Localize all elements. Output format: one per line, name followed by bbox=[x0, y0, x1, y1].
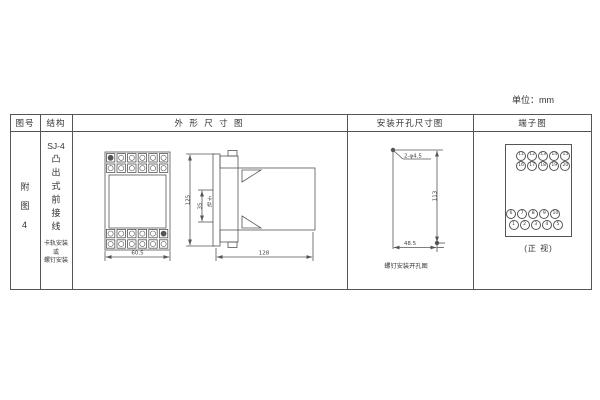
screw-head bbox=[129, 231, 134, 236]
screw-head bbox=[129, 155, 134, 160]
screw-head bbox=[108, 155, 113, 160]
mounting-caption: 螺钉安装开孔图 bbox=[384, 262, 427, 270]
screw-cell bbox=[138, 164, 146, 172]
screw-head bbox=[161, 155, 166, 160]
screw-cell bbox=[117, 229, 125, 237]
terminal-1: 1 bbox=[509, 220, 519, 230]
header-figure-no: 图号 bbox=[10, 114, 40, 131]
dim-rail-width: 35 bbox=[198, 202, 204, 209]
screw-cell bbox=[149, 240, 157, 248]
dim-depth: 128 bbox=[259, 251, 270, 257]
terminal-20: 20 bbox=[560, 161, 570, 171]
screw-cell bbox=[128, 164, 136, 172]
screw-cell bbox=[159, 164, 167, 172]
terminal-group-top: 11121314151617181920 bbox=[516, 151, 571, 173]
screw-cell bbox=[159, 154, 167, 162]
screw-head bbox=[119, 166, 124, 171]
screw-cell bbox=[149, 164, 157, 172]
header-mounting-holes: 安装开孔尺寸图 bbox=[347, 114, 473, 131]
mounting-hole-drawing: 2-φ4.5 113 48.5 螺钉安装开孔图 bbox=[347, 131, 473, 290]
terminal-11: 11 bbox=[516, 151, 526, 161]
screw-cell bbox=[117, 164, 125, 172]
screw-head bbox=[140, 241, 145, 246]
terminal-18: 18 bbox=[538, 161, 548, 171]
terminal-4: 4 bbox=[542, 220, 552, 230]
screw-head bbox=[150, 231, 155, 236]
terminal-5: 5 bbox=[553, 220, 563, 230]
terminal-row: 678910 bbox=[506, 209, 564, 220]
screw-cell bbox=[106, 164, 114, 172]
terminal-caption: (正 视) bbox=[505, 243, 572, 254]
outline-drawing: 60.5 125 35 128 bbox=[72, 131, 347, 290]
screw-head bbox=[140, 155, 145, 160]
screw-cell bbox=[138, 240, 146, 248]
screw-cell bbox=[149, 229, 157, 237]
screw-head bbox=[108, 166, 113, 171]
header-outline-dimensions: 外 形 尺 寸 图 bbox=[72, 114, 347, 131]
terminal-row: 1617181920 bbox=[516, 161, 571, 172]
header-terminal-diagram: 端子图 bbox=[473, 114, 592, 131]
screw-mark-bottom bbox=[242, 216, 261, 228]
terminal-group-bottom: 67891012345 bbox=[506, 209, 564, 231]
terminal-screws bbox=[106, 154, 167, 249]
model-label: SJ-4 bbox=[47, 141, 64, 151]
screw-head bbox=[161, 166, 166, 171]
front-view: 60.5 bbox=[105, 152, 170, 261]
dim-height: 125 bbox=[186, 194, 192, 205]
screw-head bbox=[161, 231, 166, 236]
screw-cell bbox=[128, 240, 136, 248]
screw-head bbox=[150, 166, 155, 171]
screw-cell bbox=[106, 229, 114, 237]
screw-head bbox=[161, 241, 166, 246]
screw-head bbox=[108, 231, 113, 236]
structure-cell: SJ-4 凸出式前接线 卡轨安装 或 螺钉安装 bbox=[40, 131, 72, 290]
screw-head bbox=[150, 155, 155, 160]
screw-cell bbox=[138, 229, 146, 237]
screw-cell bbox=[128, 154, 136, 162]
dim-front-width: 60.5 bbox=[131, 251, 144, 257]
terminal-9: 9 bbox=[539, 209, 549, 219]
screw-head bbox=[108, 241, 113, 246]
structure-type: 凸出式前接线 bbox=[50, 154, 63, 235]
screw-cell bbox=[106, 240, 114, 248]
mount-note-line: 螺钉安装 bbox=[44, 257, 68, 266]
screw-mark-top bbox=[242, 170, 261, 182]
mount-note-line: 或 bbox=[44, 249, 68, 258]
terminal-19: 19 bbox=[549, 161, 559, 171]
dim-horizontal-spacing: 48.5 bbox=[404, 241, 417, 247]
screw-cell bbox=[117, 240, 125, 248]
screw-head bbox=[150, 241, 155, 246]
screw-cell bbox=[149, 154, 157, 162]
datasheet-page: 单位：mm 图号 结构 外 形 尺 寸 图 安装开孔尺寸图 端子图 附图4 SJ… bbox=[0, 0, 600, 400]
terminal-16: 16 bbox=[516, 161, 526, 171]
screw-cell bbox=[159, 240, 167, 248]
terminal-row: 1112131415 bbox=[516, 151, 571, 162]
terminal-17: 17 bbox=[527, 161, 537, 171]
screw-head bbox=[140, 231, 145, 236]
mount-notes: 卡轨安装 或 螺钉安装 bbox=[44, 240, 68, 266]
screw-head bbox=[119, 241, 124, 246]
terminal-6: 6 bbox=[506, 209, 516, 219]
terminal-10: 10 bbox=[550, 209, 560, 219]
dim-vertical-spacing: 113 bbox=[433, 190, 439, 201]
screw-cell bbox=[117, 154, 125, 162]
screw-head bbox=[129, 241, 134, 246]
terminal-15: 15 bbox=[560, 151, 570, 161]
holes-label: 2-φ4.5 bbox=[404, 154, 422, 160]
column-divider-4 bbox=[473, 114, 474, 290]
screw-cell bbox=[128, 229, 136, 237]
terminal-13: 13 bbox=[538, 151, 548, 161]
screw-head bbox=[129, 166, 134, 171]
terminal-3: 3 bbox=[531, 220, 541, 230]
header-structure: 结构 bbox=[40, 114, 72, 131]
screw-head bbox=[119, 155, 124, 160]
screw-head bbox=[119, 231, 124, 236]
terminal-14: 14 bbox=[549, 151, 559, 161]
terminal-12: 12 bbox=[527, 151, 537, 161]
screw-head bbox=[140, 166, 145, 171]
rail-label: 卡轨 bbox=[206, 196, 213, 208]
terminal-8: 8 bbox=[528, 209, 538, 219]
unit-label: 单位：mm bbox=[512, 93, 554, 106]
side-view: 125 35 128 bbox=[186, 151, 316, 262]
terminal-7: 7 bbox=[517, 209, 527, 219]
terminal-row: 12345 bbox=[509, 220, 564, 231]
screw-cell bbox=[138, 154, 146, 162]
figure-number-cell: 附图4 bbox=[10, 131, 40, 290]
terminal-2: 2 bbox=[520, 220, 530, 230]
mount-note-line: 卡轨安装 bbox=[44, 240, 68, 249]
figure-number: 附图4 bbox=[19, 182, 32, 240]
